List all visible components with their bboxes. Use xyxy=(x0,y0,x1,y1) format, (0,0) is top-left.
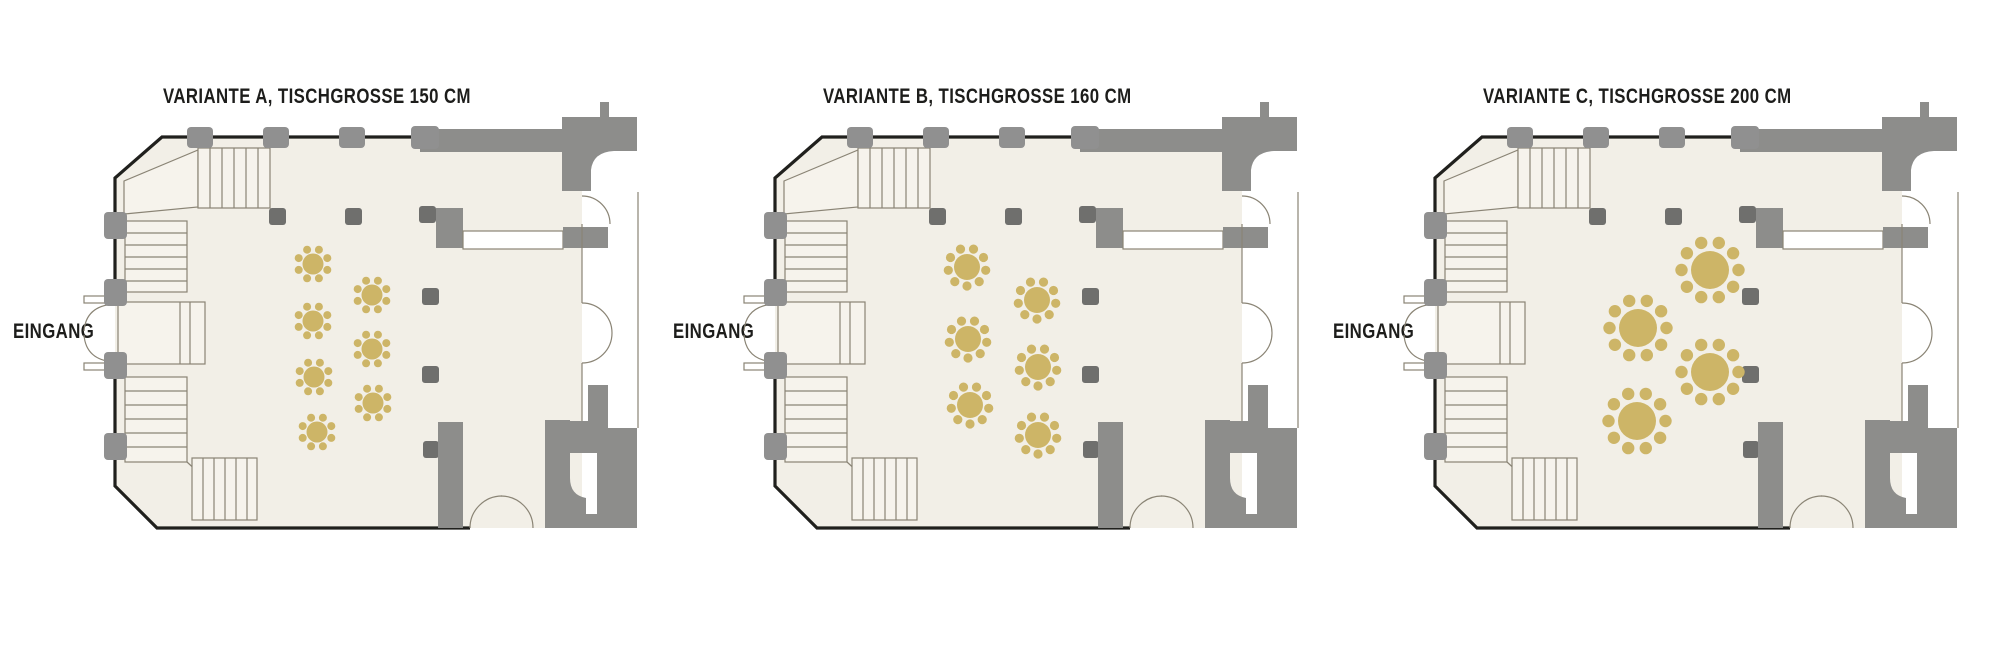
chair xyxy=(1695,237,1707,249)
chair xyxy=(1659,415,1671,427)
chair xyxy=(1623,349,1635,361)
chair xyxy=(319,442,327,450)
table-top xyxy=(363,393,384,414)
chair xyxy=(382,297,390,305)
chair xyxy=(299,422,307,430)
chair xyxy=(323,266,331,274)
table-top xyxy=(955,326,981,352)
table-top xyxy=(1691,353,1729,391)
chair xyxy=(1602,415,1614,427)
chair xyxy=(383,393,391,401)
chair xyxy=(363,413,371,421)
chair xyxy=(362,305,370,313)
chair xyxy=(316,359,324,367)
chair xyxy=(1014,299,1023,308)
chair xyxy=(1623,295,1635,307)
chair xyxy=(1608,432,1620,444)
chair xyxy=(315,274,323,282)
chair xyxy=(970,317,979,326)
chair xyxy=(303,303,311,311)
chair xyxy=(959,383,968,392)
chair xyxy=(1655,339,1667,351)
chair xyxy=(1052,366,1061,375)
floor-plan-sheet: VARIANTE A, TISCHGROSSE 150 CM EINGANG V… xyxy=(0,0,2000,646)
chair xyxy=(1713,237,1725,249)
chair xyxy=(953,415,962,424)
chair xyxy=(1040,413,1049,422)
chair xyxy=(1020,310,1029,319)
chair xyxy=(304,387,312,395)
chair xyxy=(362,359,370,367)
chair xyxy=(1027,345,1036,354)
table-top xyxy=(362,339,383,360)
chair xyxy=(975,277,984,286)
chair xyxy=(1681,383,1693,395)
chair xyxy=(1021,377,1030,386)
chair xyxy=(1713,393,1725,405)
chair xyxy=(1622,442,1634,454)
chair xyxy=(1015,434,1024,443)
chair xyxy=(969,245,978,254)
chair xyxy=(1695,393,1707,405)
chair xyxy=(382,339,390,347)
chair xyxy=(982,391,991,400)
table-top xyxy=(957,392,983,418)
chair xyxy=(1654,398,1666,410)
chair xyxy=(295,254,303,262)
chair xyxy=(324,379,332,387)
chair xyxy=(1681,281,1693,293)
chair xyxy=(949,391,958,400)
chair xyxy=(982,338,991,347)
chair xyxy=(354,285,362,293)
chair xyxy=(303,246,311,254)
chair xyxy=(1732,366,1744,378)
chair xyxy=(979,253,988,262)
chair xyxy=(362,331,370,339)
chair xyxy=(978,415,987,424)
plan-variant-b: VARIANTE B, TISCHGROSSE 160 CM EINGANG xyxy=(660,0,1320,646)
chair xyxy=(980,325,989,334)
chair xyxy=(304,359,312,367)
chair xyxy=(382,351,390,359)
table-top xyxy=(362,285,383,306)
chair xyxy=(945,338,954,347)
chair xyxy=(981,266,990,275)
chair xyxy=(1640,388,1652,400)
chair xyxy=(1660,322,1672,334)
room-drawing xyxy=(1320,0,1980,646)
chair xyxy=(324,367,332,375)
chair xyxy=(1695,291,1707,303)
chair xyxy=(374,277,382,285)
chair xyxy=(1640,442,1652,454)
chair xyxy=(296,379,304,387)
chair xyxy=(1655,305,1667,317)
chair xyxy=(354,339,362,347)
chair xyxy=(947,404,956,413)
chair xyxy=(1051,299,1060,308)
plan-variant-c: VARIANTE C, TISCHGROSSE 200 CM EINGANG xyxy=(1320,0,1980,646)
chair xyxy=(1603,322,1615,334)
chair xyxy=(1039,278,1048,287)
table-top xyxy=(303,311,324,332)
chair xyxy=(1675,366,1687,378)
chair xyxy=(1609,339,1621,351)
table-top xyxy=(1025,422,1051,448)
chair xyxy=(1015,366,1024,375)
chair xyxy=(962,281,971,290)
chair xyxy=(1641,349,1653,361)
chair xyxy=(1045,310,1054,319)
chair xyxy=(950,277,959,286)
chair xyxy=(307,414,315,422)
chair xyxy=(362,277,370,285)
chair xyxy=(307,442,315,450)
chair xyxy=(965,419,974,428)
chair xyxy=(323,254,331,262)
chair xyxy=(1027,413,1036,422)
table-top xyxy=(304,367,325,388)
table-top xyxy=(1619,309,1657,347)
table-top xyxy=(1618,402,1656,440)
chair xyxy=(944,266,953,275)
chair xyxy=(1622,388,1634,400)
chair xyxy=(327,434,335,442)
chair xyxy=(946,253,955,262)
chair xyxy=(354,351,362,359)
chair xyxy=(1641,295,1653,307)
room-drawing xyxy=(0,0,660,646)
chair xyxy=(299,434,307,442)
chair xyxy=(355,393,363,401)
chair xyxy=(1026,278,1035,287)
chair xyxy=(1017,421,1026,430)
table-top xyxy=(954,254,980,280)
chair xyxy=(1727,281,1739,293)
chair xyxy=(1681,247,1693,259)
chair xyxy=(1046,377,1055,386)
chair xyxy=(1675,264,1687,276)
chair xyxy=(1050,421,1059,430)
chair xyxy=(1727,247,1739,259)
chair xyxy=(375,413,383,421)
table-top xyxy=(1691,251,1729,289)
chair xyxy=(303,331,311,339)
chair xyxy=(1654,432,1666,444)
chair xyxy=(1049,286,1058,295)
chair xyxy=(1609,305,1621,317)
chair xyxy=(315,246,323,254)
chair xyxy=(1052,434,1061,443)
table-top xyxy=(307,422,328,443)
chair xyxy=(1046,445,1055,454)
chair xyxy=(315,303,323,311)
chair xyxy=(1727,349,1739,361)
chair xyxy=(1040,345,1049,354)
chair xyxy=(1727,383,1739,395)
chair xyxy=(382,285,390,293)
chair xyxy=(323,323,331,331)
plan-variant-a: VARIANTE A, TISCHGROSSE 150 CM EINGANG xyxy=(0,0,660,646)
chair xyxy=(354,297,362,305)
chair xyxy=(947,325,956,334)
table-top xyxy=(1025,354,1051,380)
chair xyxy=(323,311,331,319)
chair xyxy=(383,405,391,413)
chair xyxy=(363,385,371,393)
chair xyxy=(295,311,303,319)
chair xyxy=(957,317,966,326)
chair xyxy=(1017,353,1026,362)
chair xyxy=(303,274,311,282)
chair xyxy=(1713,291,1725,303)
table-top xyxy=(303,254,324,275)
chair xyxy=(315,331,323,339)
chair xyxy=(1713,339,1725,351)
chair xyxy=(1050,353,1059,362)
chair xyxy=(1732,264,1744,276)
table-top xyxy=(1024,287,1050,313)
chair xyxy=(963,353,972,362)
chair xyxy=(1681,349,1693,361)
chair xyxy=(374,331,382,339)
chair xyxy=(374,305,382,313)
chair xyxy=(296,367,304,375)
chair xyxy=(355,405,363,413)
chair xyxy=(1608,398,1620,410)
chair xyxy=(1021,445,1030,454)
chair xyxy=(295,266,303,274)
room-drawing xyxy=(660,0,1320,646)
chair xyxy=(1032,314,1041,323)
chair xyxy=(951,349,960,358)
chair xyxy=(327,422,335,430)
chair xyxy=(316,387,324,395)
chair xyxy=(375,385,383,393)
chair xyxy=(1016,286,1025,295)
chair xyxy=(295,323,303,331)
chair xyxy=(1033,449,1042,458)
chair xyxy=(319,414,327,422)
chair xyxy=(1695,339,1707,351)
chair xyxy=(956,245,965,254)
chair xyxy=(976,349,985,358)
chair xyxy=(374,359,382,367)
chair xyxy=(972,383,981,392)
chair xyxy=(984,404,993,413)
chair xyxy=(1033,381,1042,390)
